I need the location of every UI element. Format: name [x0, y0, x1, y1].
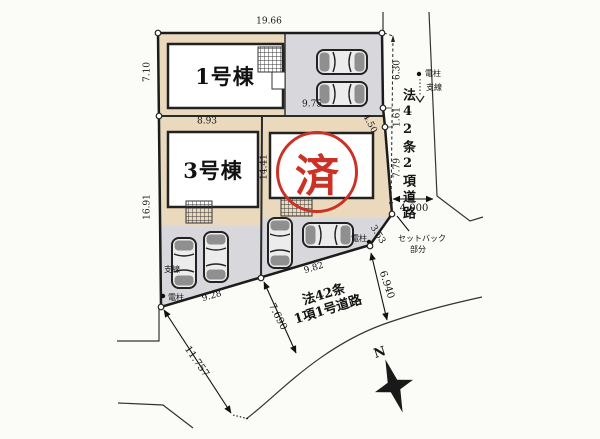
sold-stamp: 済	[276, 131, 358, 213]
car-icon	[204, 232, 228, 282]
car-icon	[317, 50, 367, 74]
pole-bottom-wire-label: 支線	[164, 266, 180, 274]
pole-mid-label: 電柱	[351, 235, 367, 243]
road-east-label: 法42条2項道路	[401, 88, 414, 222]
pole-dot	[161, 294, 165, 298]
site-plan-canvas: 1号棟 3号棟 済 19.66 7.10 16.91 8.93 9.75 14.…	[0, 0, 600, 439]
sold-stamp-text: 済	[295, 140, 339, 204]
dim-left-upper: 7.10	[144, 62, 153, 82]
car-icon	[268, 218, 292, 268]
car-icon	[172, 238, 196, 288]
building3-label: 3号棟	[183, 155, 243, 185]
pole-bottom-label: 電柱	[168, 294, 184, 302]
step-building1	[272, 72, 285, 89]
compass-icon	[366, 353, 421, 419]
stairs-building3	[186, 201, 212, 223]
dim-divider: 14.41	[261, 154, 270, 180]
wire-arrow	[416, 96, 424, 102]
building1-label: 1号棟	[195, 61, 255, 91]
pole-top-label: 電柱	[425, 70, 441, 78]
car-icon	[317, 82, 367, 106]
setback-label-line2: 部分	[410, 246, 426, 254]
pole-dot	[417, 72, 421, 76]
setback-label-line1: セットバック	[398, 235, 446, 243]
car-icon	[303, 223, 353, 247]
site-plan-drawing	[0, 0, 600, 439]
stairs-building1	[258, 47, 285, 72]
dim-left-lower: 16.91	[144, 194, 153, 220]
dim-lot3-top: 8.93	[197, 118, 217, 127]
dim-right-a: 6.30	[394, 60, 403, 80]
pole-top-wire-label: 支線	[426, 84, 442, 92]
dim-top: 19.66	[256, 18, 282, 27]
dim-parking1: 9.75	[302, 101, 322, 110]
